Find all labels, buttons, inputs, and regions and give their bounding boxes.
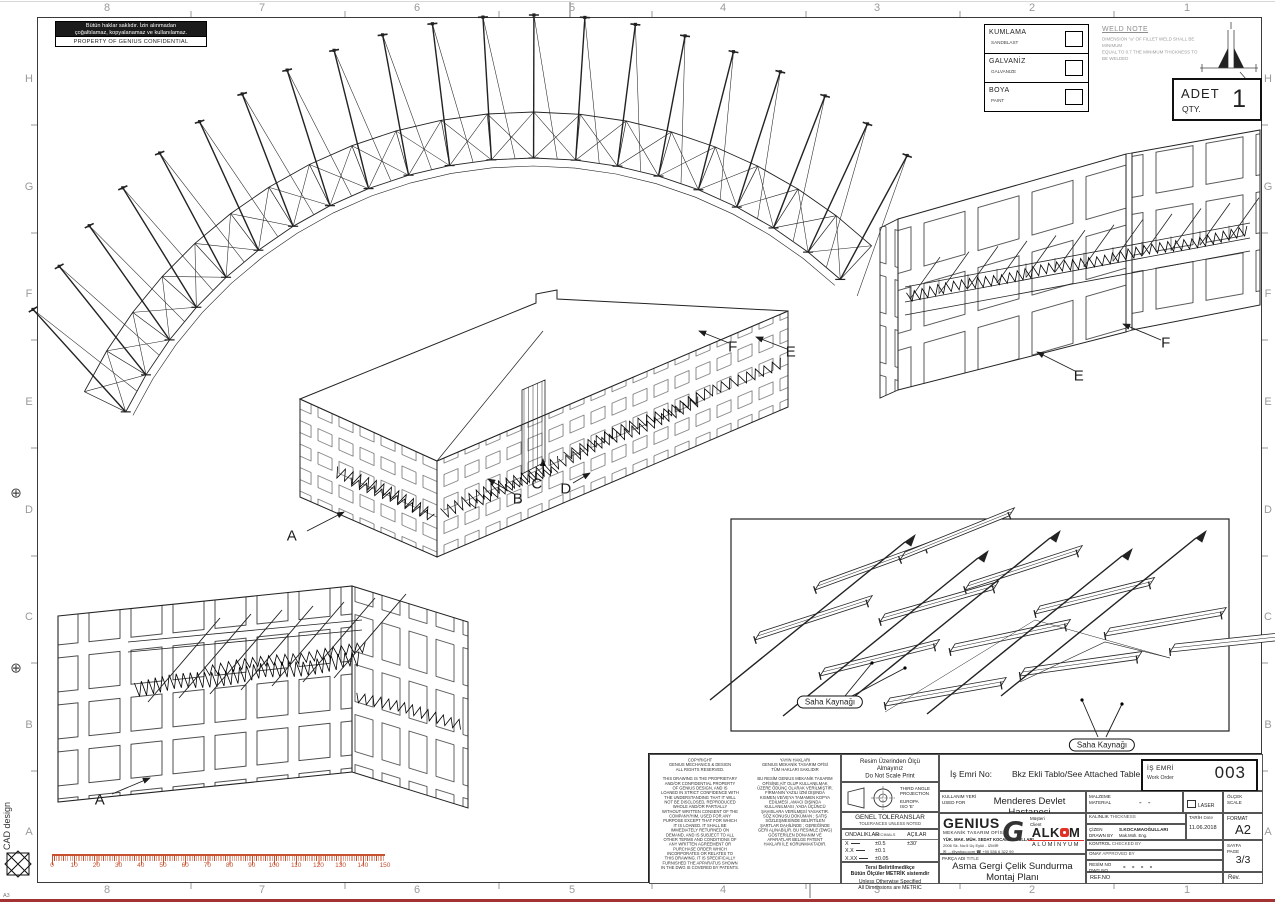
grid-col-label: 8 bbox=[104, 2, 110, 14]
view-label-f: F bbox=[728, 339, 738, 356]
date-value: 11.06.2018 bbox=[1187, 821, 1222, 831]
thickness-cell: KALINLIK THICKNESS bbox=[1086, 813, 1186, 824]
grid-col-label: 6 bbox=[414, 884, 420, 896]
grid-col-label: 2 bbox=[1029, 2, 1035, 14]
dwg-no-value: - - - - bbox=[1123, 862, 1154, 871]
finish-checkbox[interactable] bbox=[1065, 60, 1083, 76]
grid-col-label: 7 bbox=[259, 884, 265, 896]
grid-col-label: 5 bbox=[569, 884, 575, 896]
confidential-line-3: PROPERTY OF GENIUS CONFIDENTIAL bbox=[56, 36, 206, 46]
work-order-no-label: İş Emri No: bbox=[950, 769, 992, 779]
qty-label-en: QTY. bbox=[1182, 104, 1201, 114]
grid-row-label: D bbox=[1264, 504, 1272, 516]
ruler-number: 140 bbox=[357, 862, 368, 869]
drawn-by-title: Mak.Müh. Eng. bbox=[1119, 833, 1147, 838]
work-order-label-en: Work Order bbox=[1147, 775, 1174, 781]
grid-row-label: B bbox=[25, 719, 32, 731]
ruler-number: 20 bbox=[93, 862, 100, 869]
work-order-row: İş Emri No: Bkz Ekli Tablo/See Attached … bbox=[939, 754, 1263, 791]
format-cell: FORMAT A2 bbox=[1223, 813, 1263, 840]
ruler-number: 40 bbox=[137, 862, 144, 869]
grid-col-label: 2 bbox=[1029, 884, 1035, 896]
work-order-value: 003 bbox=[1215, 763, 1246, 783]
tolerance-header-cell: GENEL TOLERANSLAR TOLERANCES UNLESS NOTE… bbox=[841, 812, 939, 829]
grid-col-label: 6 bbox=[414, 2, 420, 14]
field-weld-tag: Saha Kaynağı bbox=[1069, 739, 1135, 752]
tolerance-table: ONDALIKLAR DECIMALS AÇILAR X ±0.5 ±30' X… bbox=[841, 829, 939, 862]
metric-note-cell: Tersi Belirtilmedikçe Bütün Ölçüler METR… bbox=[841, 862, 939, 884]
grid-row-label: B bbox=[1264, 719, 1271, 731]
metric-note-tr: Tersi Belirtilmedikçe Bütün Ölçüler METR… bbox=[842, 865, 938, 878]
view-label-d: D bbox=[560, 481, 571, 498]
ruler-number: 90 bbox=[248, 862, 255, 869]
view-label-b: B bbox=[513, 491, 524, 508]
scale-cell: ÖLÇEKSCALE bbox=[1223, 791, 1263, 813]
ruler-number: 70 bbox=[204, 862, 211, 869]
weld-note: WELD NOTE DIMENSION "a" OF FILLET WELD S… bbox=[1102, 26, 1197, 82]
page-value: 3/3 bbox=[1224, 854, 1262, 866]
finish-checkbox[interactable] bbox=[1065, 31, 1083, 47]
ruler-number: 10 bbox=[71, 862, 78, 869]
grid-col-label: 5 bbox=[569, 2, 575, 14]
ref-no-label: REF.NO bbox=[1087, 873, 1222, 881]
corner-note: A3 bbox=[3, 893, 10, 899]
grid-col-label: 7 bbox=[259, 2, 265, 14]
grid-row-label: C bbox=[25, 611, 33, 623]
material-cell: MALZEMEMATERIAL - - bbox=[1086, 791, 1183, 813]
grid-col-label: 3 bbox=[874, 2, 880, 14]
confidential-line-1: Bütün haklar saklıdır. İzin alınmadan bbox=[56, 22, 206, 29]
approved-by-cell: ONAY APPROVED BY bbox=[1086, 850, 1223, 860]
ruler-number: 150 bbox=[380, 862, 391, 869]
scale-note-cell: Resim Üzerinden Ölçü Almayınız Do Not Sc… bbox=[841, 754, 939, 782]
used-for-cell: KULLANIM YERİUSED FOR Menderes Devlet Ha… bbox=[939, 791, 1086, 813]
tol-row-1: X ±0.5 ±30' bbox=[842, 840, 938, 848]
centering-mark: ⊕ bbox=[10, 660, 22, 677]
detail-label-e: E bbox=[1074, 368, 1085, 385]
projection-text: THIRD ANGLE PROJECTION EUROPA ISO 'E' bbox=[900, 786, 930, 810]
grid-row-label: A bbox=[1264, 826, 1271, 838]
third-angle-symbol bbox=[842, 783, 900, 813]
projection-l2: PROJECTION bbox=[900, 791, 930, 796]
alkom-sub: ALÜMİNYUM bbox=[1028, 840, 1084, 848]
date-cell: TARİH Date 11.06.2018 bbox=[1186, 813, 1223, 840]
finish-label-en: GALVANIZE bbox=[991, 69, 1016, 74]
detail-label-f: F bbox=[1161, 335, 1171, 352]
grid-row-label: F bbox=[26, 288, 33, 300]
view-label-e: E bbox=[786, 344, 797, 361]
finish-row-galvanize: GALVANİZ GALVANIZE bbox=[985, 54, 1088, 83]
drawn-by-cell: ÇİZENDRAWN BY S.KOCAMAOĞULLARI Mak.Müh. … bbox=[1086, 824, 1186, 840]
copyright-tr: YAYIN HAKLARI GENIUS MEKANİK TASARIM OFİ… bbox=[747, 758, 841, 847]
confidential-box: Bütün haklar saklıdır. İzin alınmadan ço… bbox=[55, 21, 207, 47]
alkom-logo: ALKM ALÜMİNYUM bbox=[1028, 826, 1084, 848]
laser-cell: LASER bbox=[1183, 791, 1223, 813]
ruler-number: 100 bbox=[269, 862, 280, 869]
part-name-label: PARÇA ADI TITLE bbox=[942, 856, 979, 862]
finish-checkbox[interactable] bbox=[1065, 89, 1083, 105]
quantity-box: ADET QTY. 1 bbox=[1172, 78, 1262, 121]
grid-row-label: H bbox=[25, 73, 33, 85]
grid-row-label: F bbox=[1265, 288, 1272, 300]
grid-col-label: 4 bbox=[720, 2, 726, 14]
scale-ruler: 0102030405060708090100110120130140150 bbox=[52, 854, 385, 871]
checked-by-cell: KONTROL CHECKED BY bbox=[1086, 840, 1223, 850]
view-label-a: A bbox=[287, 528, 298, 545]
projection-l4: ISO 'E' bbox=[900, 804, 930, 809]
finish-label-tr: GALVANİZ bbox=[989, 58, 1026, 65]
copyright-cell: COPYRIGHT GENIUS MECHANICS & DESIGN ALL … bbox=[649, 754, 841, 884]
confidential-line-2: çoğaltılamaz, kopyalanamaz ve kullanılam… bbox=[56, 29, 206, 36]
part-name-cell: PARÇA ADI TITLE Asma Gergi Çelik Sundurm… bbox=[939, 854, 1086, 884]
ruler-number: 50 bbox=[159, 862, 166, 869]
genius-g-glyph: G bbox=[1000, 817, 1027, 848]
grid-row-label: H bbox=[1264, 73, 1272, 85]
do-not-scale-note: Resim Üzerinden Ölçü Almayınız Do Not Sc… bbox=[852, 755, 929, 779]
view-label-c: C bbox=[531, 476, 542, 493]
genius-contact: ✉ …@yahoo.com ☎ +90 536 6 322 99 bbox=[943, 849, 1034, 854]
part-name-value: Asma Gergi Çelik Sundurma Montaj Planı bbox=[940, 862, 1085, 884]
material-value: - - bbox=[1139, 798, 1153, 807]
ref-no-cell: REF.NO bbox=[1086, 872, 1223, 884]
ruler-number: 80 bbox=[226, 862, 233, 869]
ruler-number: 30 bbox=[115, 862, 122, 869]
grid-row-label: G bbox=[1264, 181, 1273, 193]
title-block: COPYRIGHT GENIUS MECHANICS & DESIGN ALL … bbox=[648, 753, 1262, 883]
finish-label-tr: KUMLAMA bbox=[989, 29, 1026, 36]
drawn-by-name: S.KOCAMAOĞULLARI bbox=[1119, 827, 1168, 832]
finish-label-tr: BOYA bbox=[989, 87, 1010, 94]
projection-cell: THIRD ANGLE PROJECTION EUROPA ISO 'E' bbox=[841, 782, 939, 812]
finish-label-en: SANDBLAST bbox=[991, 40, 1018, 45]
grid-col-label: 1 bbox=[1184, 884, 1190, 896]
used-for-label: KULLANIM YERİUSED FOR bbox=[942, 794, 976, 805]
drawing-sheet: 8877665544332211HHGGFFEEDDCCBBAA ⊕ ⊕ Büt… bbox=[0, 0, 1275, 906]
grid-row-label: G bbox=[25, 181, 34, 193]
centering-mark: ⊕ bbox=[10, 485, 22, 502]
work-order-no-value: Bkz Ekli Tablo/See Attached Table bbox=[1012, 769, 1140, 779]
grid-row-label: D bbox=[25, 504, 33, 516]
tol-col1-en: DECIMALS bbox=[875, 832, 907, 837]
rev-label: Rev. bbox=[1224, 873, 1262, 881]
grid-row-label: E bbox=[1264, 396, 1271, 408]
finish-row-sandblast: KUMLAMA SANDBLAST bbox=[985, 25, 1088, 54]
finish-legend: KUMLAMA SANDBLAST GALVANİZ GALVANIZE BOY… bbox=[984, 24, 1089, 112]
grid-row-label: E bbox=[25, 396, 32, 408]
copyright-en: COPYRIGHT GENIUS MECHANICS & DESIGN ALL … bbox=[652, 758, 748, 870]
qty-value: 1 bbox=[1232, 85, 1246, 114]
laser-checkbox[interactable] bbox=[1187, 800, 1196, 808]
ruler-number: 110 bbox=[291, 862, 301, 869]
grid-col-label: 4 bbox=[720, 884, 726, 896]
tol-row-2: X.X ±0.1 bbox=[842, 848, 938, 856]
finish-row-paint: BOYA PAINT bbox=[985, 83, 1088, 111]
ruler-number: 130 bbox=[335, 862, 346, 869]
finish-label-en: PAINT bbox=[991, 98, 1004, 103]
tolerance-title-en: TOLERANCES UNLESS NOTED bbox=[842, 821, 938, 826]
ruler-number: 120 bbox=[313, 862, 324, 869]
rev-cell: Rev. bbox=[1223, 872, 1263, 884]
grid-row-label: A bbox=[25, 826, 32, 838]
ruler-number: 60 bbox=[182, 862, 189, 869]
alkom-red-o bbox=[1060, 828, 1069, 837]
weld-note-title: WELD NOTE bbox=[1102, 26, 1197, 33]
field-weld-tag: Saha Kaynağı bbox=[797, 696, 863, 709]
grid-row-label: C bbox=[1264, 611, 1272, 623]
format-label: FORMAT bbox=[1224, 814, 1262, 822]
page-cell: SAYFAPAGE 3/3 bbox=[1223, 840, 1263, 872]
tolerance-title-tr: GENEL TOLERANSLAR bbox=[842, 814, 938, 821]
format-value: A2 bbox=[1224, 822, 1262, 837]
qty-label-tr: ADET bbox=[1181, 86, 1220, 101]
weld-note-body: DIMENSION "a" OF FILLET WELD SHALL BE MI… bbox=[1102, 36, 1200, 62]
dwg-no-cell: RESİM NODWG.NO - - - - bbox=[1086, 860, 1223, 872]
company-cell: GENIUS MEKANİK TASARIM OFİSİ YÜK. MAK. M… bbox=[939, 813, 1086, 854]
work-order-label-tr: İŞ EMRİ bbox=[1147, 765, 1174, 772]
tol-col2-tr: AÇILAR bbox=[907, 832, 926, 838]
laser-label: LASER bbox=[1198, 803, 1214, 809]
grid-col-label: 1 bbox=[1184, 2, 1190, 14]
work-order-box: İŞ EMRİ Work Order 003 bbox=[1141, 759, 1258, 792]
cad-design-note: CAD design bbox=[2, 790, 12, 850]
metric-note-en: Unless Otherwise Specified All Dimension… bbox=[842, 879, 938, 892]
grid-col-label: 8 bbox=[104, 884, 110, 896]
detail-label-a: A bbox=[95, 792, 106, 809]
ruler-number: 0 bbox=[50, 862, 54, 869]
